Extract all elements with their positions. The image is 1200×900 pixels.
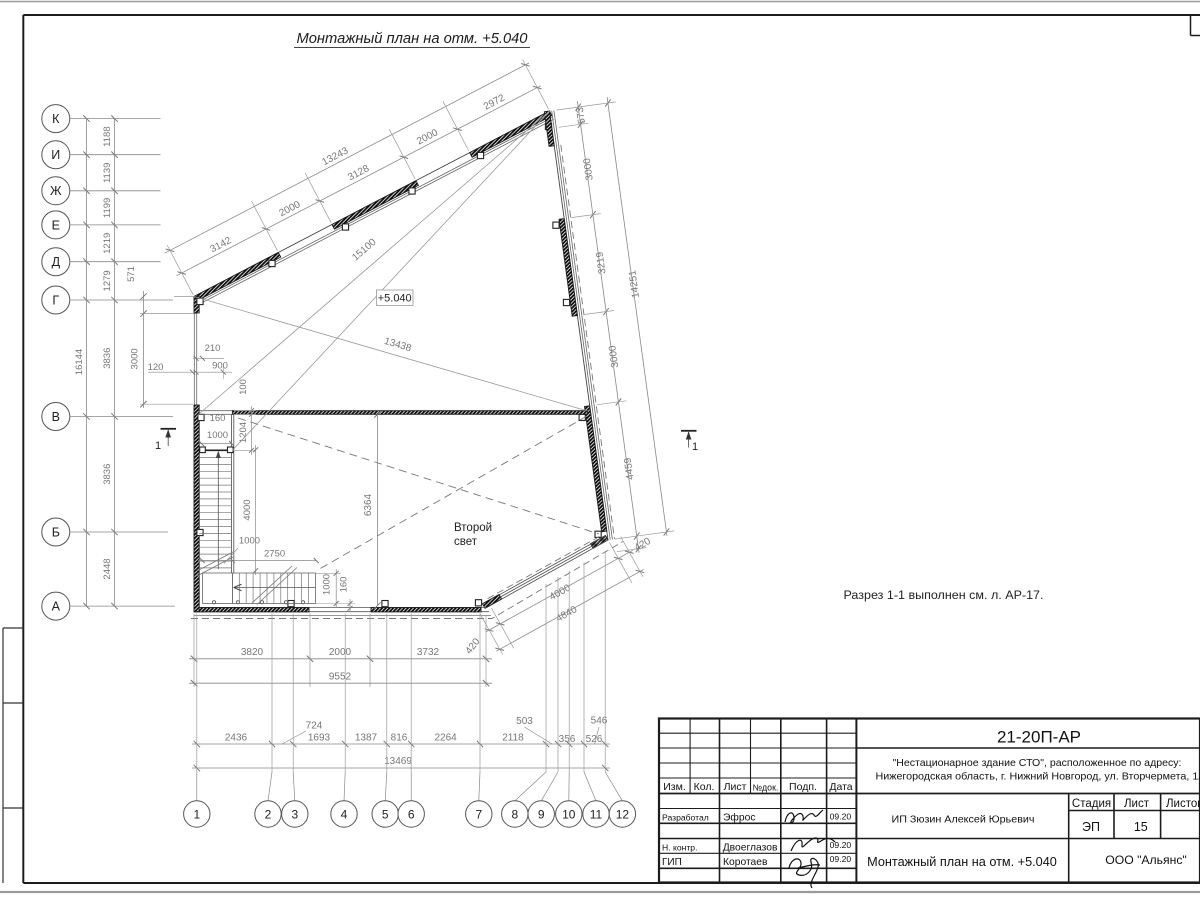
svg-text:724: 724 (306, 721, 323, 732)
svg-text:526: 526 (586, 734, 603, 745)
svg-text:свет: свет (454, 536, 478, 548)
svg-text:Второй: Второй (454, 522, 492, 534)
svg-text:3732: 3732 (417, 647, 440, 658)
svg-text:Изм.: Изм. (663, 781, 686, 793)
svg-text:900: 900 (212, 361, 228, 372)
svg-text:1000: 1000 (207, 430, 228, 441)
svg-text:И: И (51, 148, 60, 162)
svg-text:1279: 1279 (102, 270, 113, 291)
svg-text:3836: 3836 (102, 348, 113, 369)
svg-text:Е: Е (52, 218, 60, 232)
svg-text:1: 1 (155, 440, 161, 452)
svg-text:7: 7 (475, 807, 482, 821)
svg-text:Подп.: Подп. (789, 781, 817, 793)
svg-text:12: 12 (616, 807, 630, 821)
svg-text:Б: Б (52, 525, 60, 539)
svg-text:Д: Д (52, 255, 61, 269)
svg-text:Н. контр.: Н. контр. (662, 842, 697, 852)
svg-text:5: 5 (382, 807, 389, 821)
svg-text:"Нестационарное здание СТО", р: "Нестационарное здание СТО", расположенн… (893, 758, 1182, 769)
svg-text:Эфрос: Эфрос (723, 811, 755, 823)
svg-text:2118: 2118 (502, 733, 524, 744)
svg-text:3836: 3836 (102, 464, 113, 485)
svg-text:4: 4 (341, 807, 348, 821)
svg-text:6: 6 (408, 807, 415, 821)
svg-text:2264: 2264 (434, 733, 457, 744)
svg-text:2: 2 (265, 807, 272, 821)
svg-text:+5.040: +5.040 (378, 293, 412, 305)
svg-text:3000: 3000 (130, 348, 141, 369)
svg-text:3: 3 (291, 807, 298, 821)
svg-text:Стадия: Стадия (1072, 798, 1111, 810)
svg-text:А: А (52, 600, 61, 614)
svg-text:13469: 13469 (384, 756, 412, 767)
svg-text:2448: 2448 (102, 558, 113, 579)
svg-text:К: К (52, 112, 60, 126)
svg-text:ГИП: ГИП (662, 857, 682, 868)
svg-text:Монтажный план на отм. +5.040: Монтажный план на отм. +5.040 (867, 855, 1057, 869)
svg-text:6364: 6364 (363, 493, 374, 516)
svg-text:356: 356 (559, 734, 576, 745)
svg-text:1139: 1139 (102, 163, 113, 183)
svg-text:Ж: Ж (50, 184, 62, 198)
svg-text:Лист: Лист (1124, 798, 1150, 810)
svg-text:1000: 1000 (239, 536, 260, 547)
svg-text:Лист: Лист (724, 781, 747, 793)
svg-text:Разработал: Разработал (662, 812, 709, 822)
svg-text:Г: Г (52, 293, 59, 307)
svg-text:№док.: №док. (753, 783, 779, 793)
svg-text:Нижегородская область, г. Нижн: Нижегородская область, г. Нижний Новгоро… (876, 771, 1200, 783)
svg-text:15: 15 (1134, 820, 1148, 834)
svg-text:1204: 1204 (238, 422, 249, 443)
svg-text:21-20П-АР: 21-20П-АР (997, 728, 1081, 747)
svg-text:2000: 2000 (329, 647, 352, 658)
svg-text:1: 1 (692, 441, 698, 453)
svg-text:503: 503 (516, 716, 533, 727)
svg-text:160: 160 (339, 577, 350, 593)
svg-text:ЭП: ЭП (1082, 820, 1100, 834)
svg-text:120: 120 (148, 362, 164, 373)
svg-text:09.20: 09.20 (830, 812, 852, 822)
svg-text:ООО "Альянс": ООО "Альянс" (1105, 853, 1187, 867)
svg-text:Двоеглазов: Двоеглазов (723, 842, 778, 853)
svg-text:100: 100 (238, 379, 249, 395)
svg-text:210: 210 (205, 343, 221, 354)
svg-text:9552: 9552 (329, 672, 352, 683)
svg-text:4000: 4000 (242, 499, 253, 520)
svg-text:1000: 1000 (322, 574, 333, 595)
svg-text:1219: 1219 (102, 233, 113, 254)
svg-text:160: 160 (210, 413, 226, 424)
svg-text:Коротаев: Коротаев (723, 857, 768, 868)
svg-text:8: 8 (511, 807, 518, 821)
svg-text:Кол.: Кол. (694, 781, 715, 793)
svg-text:1188: 1188 (102, 126, 113, 146)
svg-text:9: 9 (538, 807, 545, 821)
svg-text:10: 10 (562, 807, 576, 821)
svg-text:1199: 1199 (102, 198, 113, 218)
svg-text:Монтажный план на отм. +5.040: Монтажный план на отм. +5.040 (297, 31, 529, 47)
svg-text:16144: 16144 (74, 349, 85, 375)
svg-text:11: 11 (590, 807, 603, 821)
svg-text:571: 571 (126, 266, 137, 282)
svg-text:Разрез 1-1 выполнен см. л. АР-: Разрез 1-1 выполнен см. л. АР-17. (844, 588, 1044, 602)
svg-text:3820: 3820 (241, 647, 264, 658)
svg-text:2750: 2750 (264, 549, 285, 560)
svg-text:1693: 1693 (308, 733, 331, 744)
svg-text:573: 573 (575, 106, 588, 124)
svg-text:09.20: 09.20 (830, 840, 852, 850)
svg-text:1387: 1387 (355, 733, 378, 744)
svg-text:09.20: 09.20 (830, 854, 852, 864)
svg-text:Дата: Дата (829, 781, 852, 793)
svg-text:1: 1 (193, 807, 200, 821)
svg-text:ИП Зюзин Алексей Юрьевич: ИП Зюзин Алексей Юрьевич (892, 815, 1035, 826)
svg-text:Листов: Листов (1166, 798, 1200, 810)
svg-text:В: В (52, 410, 60, 424)
svg-text:2436: 2436 (225, 733, 248, 744)
svg-text:816: 816 (391, 733, 408, 744)
